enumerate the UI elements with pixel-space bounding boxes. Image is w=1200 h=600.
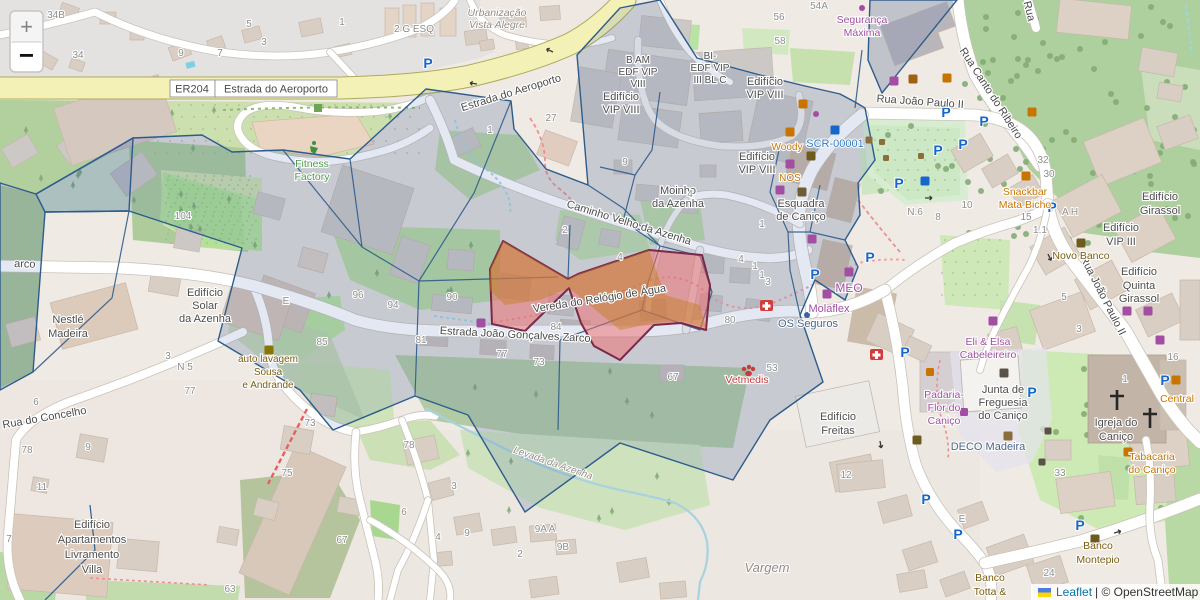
svg-text:24: 24 <box>1043 568 1055 579</box>
svg-text:Edifício: Edifício <box>74 519 110 531</box>
svg-text:da Azenha: da Azenha <box>179 313 232 325</box>
svg-text:+: + <box>20 14 33 39</box>
svg-text:94: 94 <box>387 300 399 311</box>
svg-text:da Azenha: da Azenha <box>652 198 705 210</box>
svg-text:Novo Banco: Novo Banco <box>1052 250 1109 262</box>
svg-text:4: 4 <box>617 252 623 263</box>
svg-text:arco: arco <box>14 258 36 271</box>
svg-text:N 5: N 5 <box>177 362 193 373</box>
svg-text:54A: 54A <box>810 1 828 12</box>
svg-text:P: P <box>810 266 819 282</box>
svg-text:Sousa: Sousa <box>254 367 283 378</box>
svg-text:Flor do: Flor do <box>928 402 961 414</box>
svg-text:96: 96 <box>352 290 364 301</box>
svg-text:Nestlé: Nestlé <box>52 314 83 326</box>
svg-text:E: E <box>283 296 290 307</box>
svg-text:VIP VIII: VIP VIII <box>746 89 783 101</box>
svg-text:BI-: BI- <box>704 51 717 62</box>
svg-text:9: 9 <box>178 48 184 59</box>
svg-text:P: P <box>958 136 967 152</box>
svg-text:2 G ESQ: 2 G ESQ <box>394 24 434 35</box>
svg-text:Apartamentos: Apartamentos <box>58 534 127 546</box>
svg-text:de Caniço: de Caniço <box>776 211 826 223</box>
svg-text:P: P <box>979 113 988 129</box>
svg-text:6: 6 <box>401 507 407 518</box>
svg-text:Girassol: Girassol <box>1119 293 1159 305</box>
svg-text:do Caniço: do Caniço <box>978 410 1028 422</box>
svg-text:E: E <box>959 514 966 525</box>
svg-text:VIP VIII: VIP VIII <box>738 164 775 176</box>
svg-text:Edifício: Edifício <box>1142 191 1178 203</box>
svg-text:33: 33 <box>1054 468 1066 479</box>
svg-text:Totta &: Totta & <box>974 586 1007 598</box>
svg-text:SCR-00001: SCR-00001 <box>806 138 863 150</box>
svg-text:3: 3 <box>451 481 457 492</box>
svg-text:7: 7 <box>6 534 12 545</box>
svg-text:P: P <box>1160 372 1169 388</box>
svg-text:N.6: N.6 <box>907 207 923 218</box>
svg-text:Vargem: Vargem <box>744 560 789 575</box>
svg-text:73: 73 <box>304 418 316 429</box>
svg-text:Igreja do: Igreja do <box>1095 417 1138 429</box>
svg-text:10: 10 <box>961 200 973 211</box>
svg-text:B AM: B AM <box>626 55 650 66</box>
svg-text:P: P <box>933 142 942 158</box>
svg-text:9: 9 <box>85 442 91 453</box>
svg-text:12: 12 <box>840 470 852 481</box>
svg-text:6: 6 <box>33 397 39 408</box>
svg-text:2: 2 <box>517 549 523 560</box>
svg-text:67: 67 <box>667 372 679 383</box>
svg-text:1: 1 <box>1122 374 1128 385</box>
svg-text:Padaria-: Padaria- <box>924 389 964 401</box>
svg-text:VIP VIII: VIP VIII <box>602 104 639 116</box>
svg-text:Caniço: Caniço <box>1099 431 1133 443</box>
svg-text:P: P <box>1027 384 1036 400</box>
svg-text:Banco: Banco <box>1083 540 1113 552</box>
svg-text:4: 4 <box>738 254 744 265</box>
svg-text:4: 4 <box>435 532 441 543</box>
svg-text:| © OpenStreetMap: | © OpenStreetMap <box>1095 585 1199 599</box>
svg-text:75: 75 <box>281 468 293 479</box>
svg-text:Banco: Banco <box>975 572 1005 584</box>
svg-text:Fitness: Fitness <box>295 158 329 170</box>
svg-text:Cabeleireiro: Cabeleireiro <box>960 349 1017 361</box>
svg-text:Solar: Solar <box>192 300 218 312</box>
svg-text:P: P <box>921 491 930 507</box>
svg-text:34: 34 <box>72 50 84 61</box>
svg-text:NOS: NOS <box>779 173 801 184</box>
svg-text:VIP III: VIP III <box>1106 236 1136 248</box>
svg-text:5: 5 <box>246 19 252 30</box>
svg-text:Molaflex: Molaflex <box>809 303 850 315</box>
svg-text:Edifício: Edifício <box>739 151 775 163</box>
svg-text:53: 53 <box>766 363 778 374</box>
svg-text:Vetmedis: Vetmedis <box>725 374 768 386</box>
svg-text:3: 3 <box>1076 324 1082 335</box>
svg-text:77: 77 <box>184 386 196 397</box>
svg-text:OS Seguros: OS Seguros <box>778 318 838 330</box>
svg-text:85: 85 <box>316 337 328 348</box>
svg-text:15: 15 <box>1020 212 1032 223</box>
svg-text:P: P <box>1075 517 1084 533</box>
svg-text:Edifício: Edifício <box>1103 222 1139 234</box>
svg-text:Caniço: Caniço <box>928 415 961 427</box>
svg-text:e Andrande: e Andrande <box>242 380 294 391</box>
svg-text:Snackbar: Snackbar <box>1003 186 1048 198</box>
svg-text:ER204: ER204 <box>175 84 209 96</box>
svg-text:7: 7 <box>217 48 223 59</box>
svg-text:auto lavagem: auto lavagem <box>238 354 298 365</box>
svg-text:1: 1 <box>487 125 493 136</box>
svg-text:9B: 9B <box>557 542 570 553</box>
svg-text:Woody: Woody <box>772 142 803 153</box>
svg-text:4: 4 <box>687 189 693 200</box>
svg-text:Leaflet: Leaflet <box>1056 585 1093 599</box>
svg-text:32: 32 <box>1037 155 1049 166</box>
svg-text:63: 63 <box>224 584 236 595</box>
svg-text:3: 3 <box>765 277 771 288</box>
svg-text:1: 1 <box>339 17 345 28</box>
svg-text:Urbanização: Urbanização <box>468 7 527 19</box>
svg-text:P: P <box>894 175 903 191</box>
svg-text:Edifício: Edifício <box>747 76 783 88</box>
svg-text:Livramento: Livramento <box>65 549 119 561</box>
svg-text:Máxima: Máxima <box>844 27 881 39</box>
svg-text:Mata Bicho: Mata Bicho <box>999 199 1052 211</box>
svg-text:Edifício: Edifício <box>187 287 223 299</box>
svg-text:do Caniço: do Caniço <box>1128 464 1175 476</box>
svg-text:Estrada do Aeroporto: Estrada do Aeroporto <box>224 84 328 96</box>
svg-text:−: − <box>19 40 34 70</box>
svg-text:90: 90 <box>446 292 458 303</box>
svg-text:58: 58 <box>774 36 786 47</box>
svg-text:30: 30 <box>1043 169 1055 180</box>
svg-text:3: 3 <box>261 37 267 48</box>
svg-text:Freitas: Freitas <box>821 425 855 437</box>
svg-text:DECO Madeira: DECO Madeira <box>951 441 1026 453</box>
svg-text:Quinta: Quinta <box>1123 280 1156 292</box>
svg-text:Girassol: Girassol <box>1140 205 1180 217</box>
svg-text:Edifício: Edifício <box>603 91 639 103</box>
svg-text:11: 11 <box>37 482 48 493</box>
svg-text:84: 84 <box>550 322 562 333</box>
svg-text:Esquadra: Esquadra <box>777 198 825 210</box>
svg-text:Montepio: Montepio <box>1076 554 1119 566</box>
svg-text:Edifício: Edifício <box>1121 266 1157 278</box>
svg-text:P: P <box>423 55 432 71</box>
svg-text:78: 78 <box>403 440 415 451</box>
svg-text:III BL C: III BL C <box>694 75 727 86</box>
svg-text:67: 67 <box>336 535 348 546</box>
svg-text:Villa: Villa <box>82 564 103 576</box>
svg-text:Factory: Factory <box>294 171 330 183</box>
svg-text:MEO: MEO <box>835 281 862 295</box>
svg-text:9A A: 9A A <box>535 524 556 535</box>
svg-text:27: 27 <box>545 113 557 124</box>
svg-text:Vista Alegre: Vista Alegre <box>469 19 525 31</box>
svg-text:P: P <box>865 249 874 265</box>
svg-text:Madeira: Madeira <box>48 328 89 340</box>
svg-text:1.1: 1.1 <box>1033 225 1047 236</box>
svg-text:1: 1 <box>759 219 765 230</box>
svg-text:80: 80 <box>724 315 736 326</box>
svg-text:16: 16 <box>1167 352 1179 363</box>
svg-text:77: 77 <box>496 349 508 360</box>
svg-text:56: 56 <box>773 12 785 23</box>
svg-text:8: 8 <box>935 212 941 223</box>
svg-text:EDF VIP: EDF VIP <box>619 67 658 78</box>
svg-text:104: 104 <box>175 211 192 222</box>
svg-text:Edifício: Edifício <box>820 411 856 423</box>
svg-text:Eli & Elsa: Eli & Elsa <box>966 336 1011 348</box>
svg-text:P: P <box>953 526 962 542</box>
svg-text:Freguesia: Freguesia <box>979 397 1029 409</box>
svg-text:1: 1 <box>752 261 758 272</box>
svg-text:5: 5 <box>1061 292 1067 303</box>
svg-text:Junta de: Junta de <box>982 384 1024 396</box>
svg-text:Central: Central <box>1160 393 1194 405</box>
svg-text:34B: 34B <box>47 10 65 21</box>
svg-text:9: 9 <box>464 528 470 539</box>
svg-text:A H: A H <box>1062 207 1078 218</box>
svg-text:VIII: VIII <box>630 79 645 90</box>
svg-text:P: P <box>900 344 909 360</box>
svg-text:78: 78 <box>21 445 33 456</box>
svg-text:Segurança: Segurança <box>837 14 888 26</box>
svg-text:73: 73 <box>533 357 545 368</box>
svg-text:Tabacaria: Tabacaria <box>1129 451 1175 463</box>
svg-text:81: 81 <box>415 335 427 346</box>
svg-text:9: 9 <box>622 157 628 168</box>
svg-text:3: 3 <box>165 351 171 362</box>
svg-text:EDF VIP: EDF VIP <box>691 63 730 74</box>
svg-text:2: 2 <box>562 225 568 236</box>
